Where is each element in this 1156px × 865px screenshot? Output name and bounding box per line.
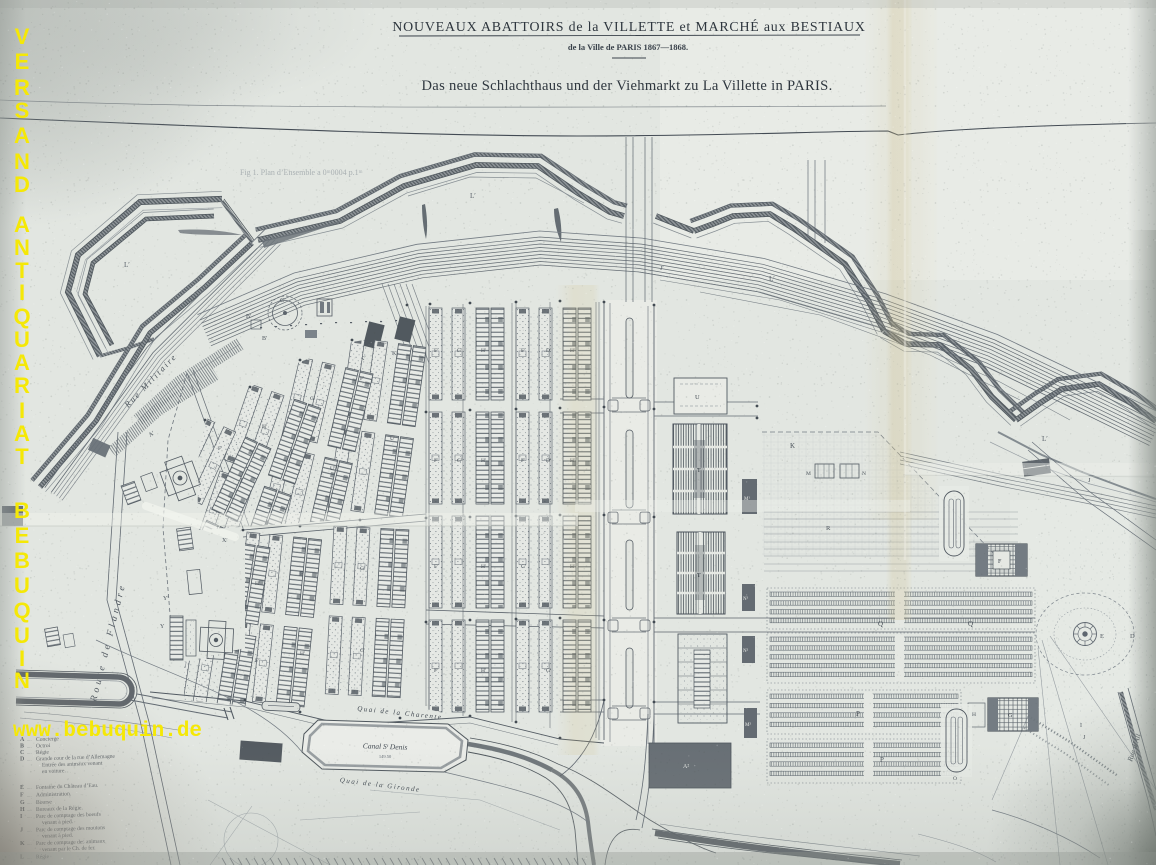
svg-text:S: S (15, 98, 30, 123)
svg-text:B: B (14, 498, 30, 523)
svg-text:N: N (14, 149, 30, 174)
svg-text:A: A (14, 212, 30, 237)
svg-text:D: D (14, 172, 30, 197)
svg-text:R: R (14, 373, 30, 398)
svg-text:R: R (14, 75, 30, 100)
svg-text:V: V (15, 24, 30, 49)
svg-text:T: T (15, 444, 29, 469)
svg-text:B: B (14, 548, 30, 573)
svg-text:A: A (14, 123, 30, 148)
svg-text:N: N (14, 668, 30, 693)
svg-text:www.bebuquin.de: www.bebuquin.de (13, 720, 202, 743)
svg-text:Q: Q (13, 304, 30, 329)
svg-text:E: E (15, 523, 30, 548)
svg-text:U: U (14, 623, 30, 648)
svg-text:A: A (14, 350, 30, 375)
svg-text:U: U (14, 327, 30, 352)
svg-text:E: E (15, 49, 30, 74)
svg-text:U: U (14, 573, 30, 598)
svg-text:A: A (14, 421, 30, 446)
svg-text:Q: Q (13, 598, 30, 623)
svg-text:N: N (14, 235, 30, 260)
svg-text:I: I (19, 398, 25, 423)
svg-text:I: I (19, 280, 25, 305)
